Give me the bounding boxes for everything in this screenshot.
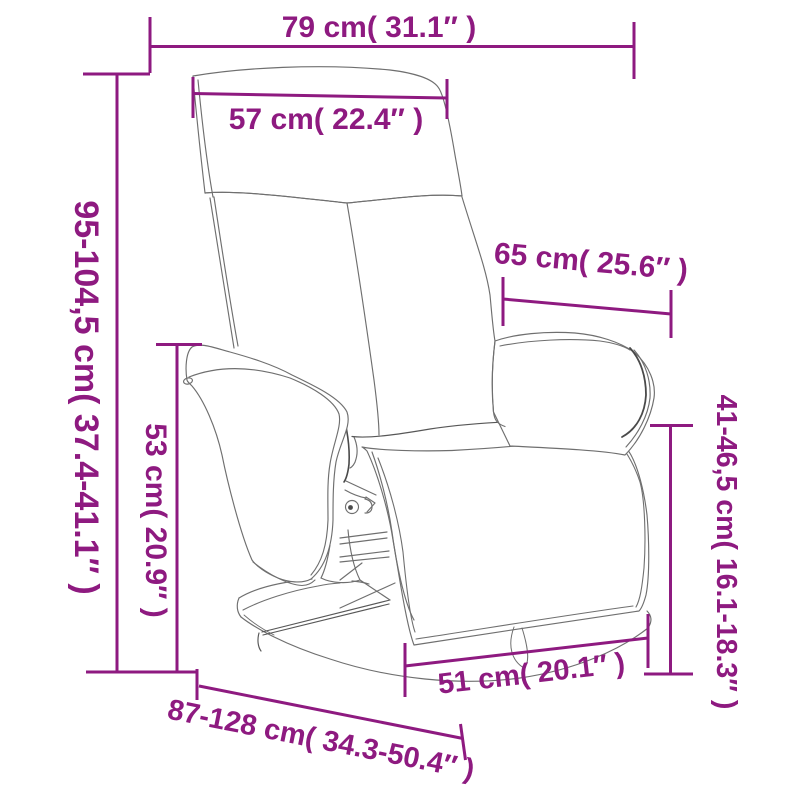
svg-text:53 cm( 20.9″ ): 53 cm( 20.9″ ) [139,423,172,617]
svg-text:41-46,5 cm( 16.1-18.3″ ): 41-46,5 cm( 16.1-18.3″ ) [710,395,742,710]
svg-text:95-104,5 cm( 37.4-41.1″ ): 95-104,5 cm( 37.4-41.1″ ) [67,200,105,594]
svg-text:79 cm( 31.1″ ): 79 cm( 31.1″ ) [282,11,476,44]
svg-text:57 cm( 22.4″ ): 57 cm( 22.4″ ) [229,103,423,136]
